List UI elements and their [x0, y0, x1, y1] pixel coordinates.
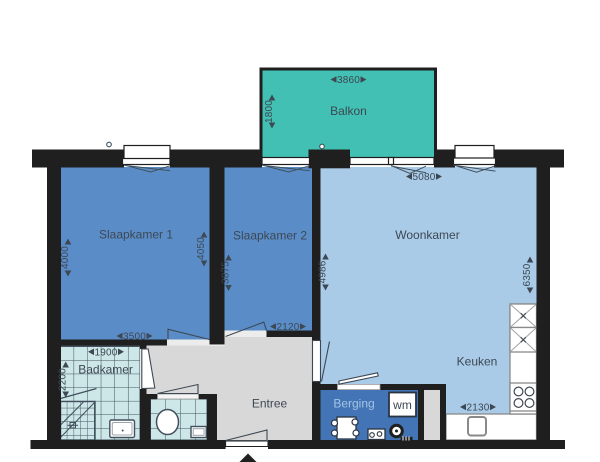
- svg-text:5080: 5080: [412, 172, 435, 183]
- svg-text:Slaapkamer 2: Slaapkamer 2: [233, 229, 307, 243]
- svg-text:6350: 6350: [522, 263, 533, 286]
- svg-text:Berging: Berging: [333, 397, 374, 411]
- svg-text:3500: 3500: [123, 332, 146, 343]
- svg-text:3860: 3860: [337, 75, 360, 86]
- svg-text:wm: wm: [392, 398, 412, 412]
- svg-text:Slaapkamer 1: Slaapkamer 1: [99, 228, 173, 242]
- svg-text:4000: 4000: [60, 246, 71, 269]
- svg-text:4986: 4986: [318, 260, 329, 283]
- svg-text:Balkon: Balkon: [330, 104, 367, 118]
- svg-text:3875: 3875: [221, 261, 232, 284]
- svg-text:1800: 1800: [264, 100, 275, 123]
- svg-text:Entree: Entree: [252, 397, 288, 411]
- svg-text:Badkamer: Badkamer: [78, 363, 133, 377]
- svg-text:4050: 4050: [196, 237, 207, 260]
- svg-text:2120: 2120: [276, 322, 299, 333]
- svg-text:1900: 1900: [94, 347, 117, 358]
- svg-text:Keuken: Keuken: [457, 355, 498, 369]
- svg-text:2130: 2130: [466, 403, 489, 414]
- svg-text:Woonkamer: Woonkamer: [395, 228, 459, 242]
- svg-text:2200: 2200: [58, 368, 69, 391]
